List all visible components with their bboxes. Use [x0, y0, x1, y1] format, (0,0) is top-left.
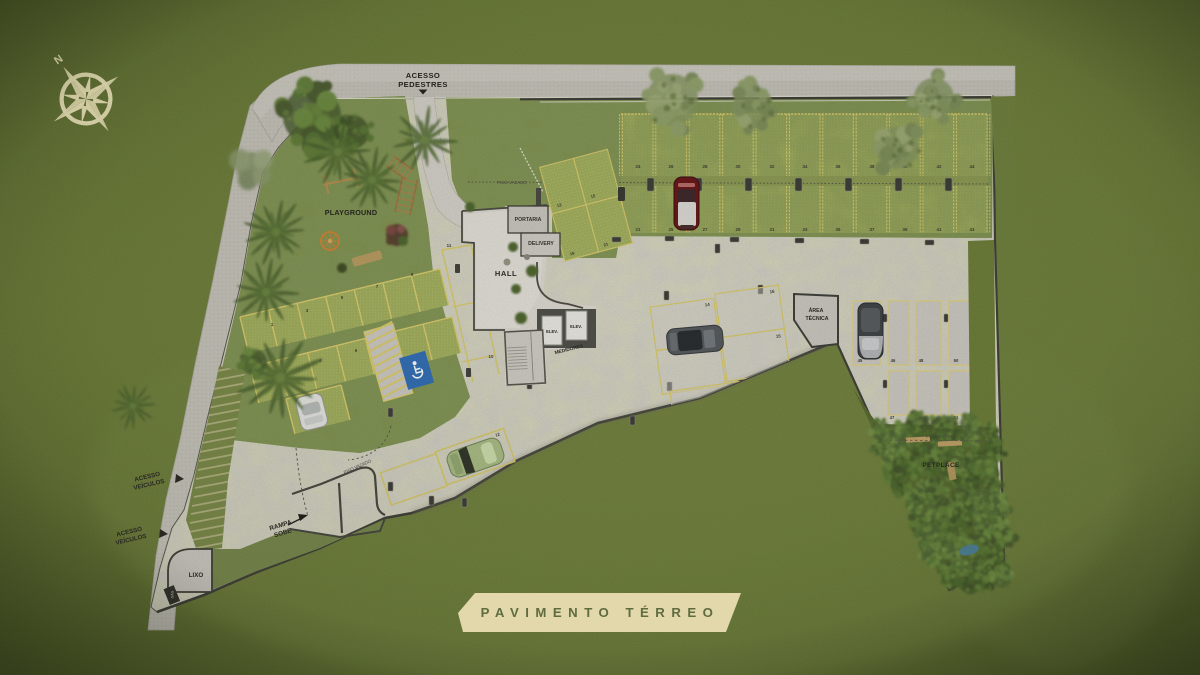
svg-text:PAVIMENTO TÉRREO: PAVIMENTO TÉRREO — [481, 605, 720, 620]
